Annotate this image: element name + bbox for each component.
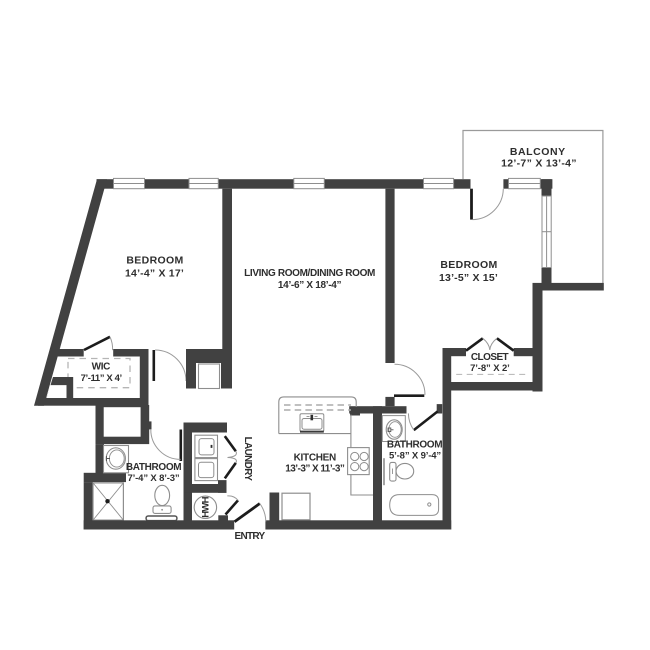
svg-text:CLOSET: CLOSET	[471, 352, 509, 363]
svg-text:WIC: WIC	[92, 361, 110, 372]
svg-text:LIVING ROOM/DINING ROOM: LIVING ROOM/DINING ROOM	[244, 268, 375, 279]
svg-text:BEDROOM: BEDROOM	[440, 259, 497, 271]
svg-text:KITCHEN: KITCHEN	[294, 453, 336, 464]
svg-text:7’-4” X 8’-3”: 7’-4” X 8’-3”	[128, 473, 180, 484]
svg-text:BALCONY: BALCONY	[510, 146, 566, 158]
svg-text:14’-6” X 18’-4”: 14’-6” X 18’-4”	[278, 280, 342, 291]
svg-text:7’-8” X 2’: 7’-8” X 2’	[470, 363, 510, 374]
svg-text:BATHROOM: BATHROOM	[126, 462, 181, 473]
svg-text:13’-5” X 15’: 13’-5” X 15’	[439, 272, 498, 284]
svg-text:13’-3” X 11’-3”: 13’-3” X 11’-3”	[285, 463, 345, 474]
svg-text:12’-7” X 13’-4”: 12’-7” X 13’-4”	[501, 158, 577, 170]
svg-text:5’-8” X 9’-4”: 5’-8” X 9’-4”	[389, 450, 441, 461]
svg-text:14’-4” X 17’: 14’-4” X 17’	[125, 268, 184, 280]
svg-text:HWH: HWH	[200, 496, 211, 517]
svg-text:BATHROOM: BATHROOM	[387, 439, 442, 450]
svg-text:BEDROOM: BEDROOM	[126, 255, 183, 267]
svg-text:7’-11” X 4’: 7’-11” X 4’	[81, 373, 122, 384]
svg-text:LAUNDRY: LAUNDRY	[242, 437, 253, 482]
svg-text:ENTRY: ENTRY	[234, 531, 265, 542]
